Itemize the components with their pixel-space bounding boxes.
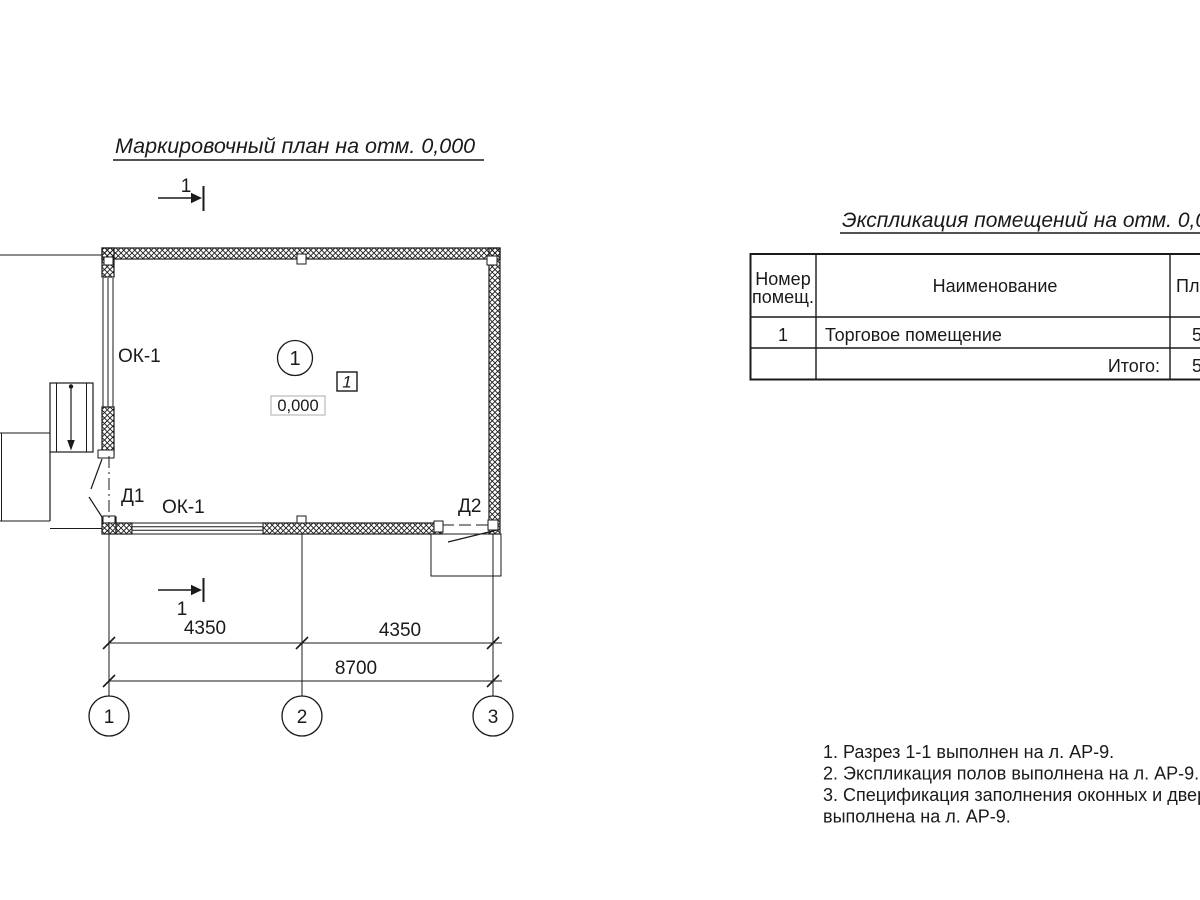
axis-2-label: 2 [297, 707, 308, 728]
wall-bottom-seg1 [116, 523, 132, 534]
notes-block: 1. Разрез 1-1 выполнен на л. АР-9. 2. Эк… [823, 742, 1200, 827]
cell-total-label: Итого: [1108, 356, 1160, 376]
table-title: Экспликация помещений на отм. 0,000 [842, 209, 1200, 232]
room-annotations: 1 1 0,000 ОК-1 Д1 ОК-1 Д2 [118, 341, 481, 519]
wall-right [489, 248, 500, 534]
note-line-1: 1. Разрез 1-1 выполнен на л. АР-9. [823, 742, 1114, 762]
th-area: Площадь [1176, 276, 1200, 296]
note-line-4: выполнена на л. АР-9. [823, 807, 1011, 827]
corner-tab [104, 257, 113, 265]
explication-table: Экспликация помещений на отм. 0,000 Номе… [750, 209, 1200, 381]
section-mark-top-label: 1 [181, 176, 192, 197]
dim-left-label: 4350 [184, 618, 226, 639]
section-mark-bottom: 1 [158, 578, 204, 620]
window-bottom [132, 523, 263, 534]
wall-bottom-seg2 [263, 523, 442, 534]
drawing-canvas: Маркировочный план на отм. 0,000 1 [0, 0, 1200, 900]
cell-total-area: 5 [1192, 356, 1200, 376]
door2-swing [448, 530, 497, 542]
elevation-label: 0,000 [277, 397, 318, 415]
room-tag-label: 1 [342, 373, 351, 392]
cell-room-no: 1 [778, 325, 788, 345]
door2-label: Д2 [458, 496, 481, 517]
window-frame [132, 523, 263, 534]
room-number-label: 1 [289, 348, 300, 370]
direction-arrow-head-icon [67, 440, 75, 451]
page-title: Маркировочный план на отм. 0,000 [115, 134, 475, 158]
axes-and-dimensions: 4350 4350 8700 1 2 3 [89, 456, 513, 736]
cell-room-area: 5 [1192, 325, 1200, 345]
cell-room-name: Торговое помещение [825, 325, 1002, 345]
door2-frame-tab [434, 521, 443, 532]
dim-total-label: 8700 [335, 658, 377, 679]
axis2-top-tab [297, 254, 306, 264]
section-mark-top: 1 [158, 176, 204, 211]
axis2-bottom-tab [297, 516, 306, 523]
th-name: Наименование [933, 276, 1058, 296]
plan-title-block: Маркировочный план на отм. 0,000 [113, 134, 484, 160]
entrance-steps [50, 383, 102, 529]
section-mark-bottom-label: 1 [177, 599, 188, 620]
porch-right-outline [431, 534, 501, 576]
note-line-2: 2. Экспликация полов выполнена на л. АР-… [823, 764, 1199, 784]
corner-tab [487, 256, 497, 265]
door1-label: Д1 [121, 486, 144, 507]
wall-left-pier-mid [102, 407, 114, 455]
window-left [103, 278, 113, 407]
dim-right-label: 4350 [379, 620, 421, 641]
window-bottom-label: ОК-1 [162, 497, 205, 518]
door2-frame-tab [488, 520, 498, 530]
door1-head-tab [98, 450, 114, 458]
axis-1-label: 1 [104, 707, 115, 728]
window-left-label: ОК-1 [118, 346, 161, 367]
th-room-number-line2: помещ. [752, 287, 814, 307]
axis-3-label: 3 [488, 707, 499, 728]
section-arrow-head-icon [191, 585, 202, 595]
section-arrow-head-icon [191, 193, 202, 203]
note-line-3: 3. Спецификация заполнения оконных и две… [823, 785, 1200, 805]
th-room-number-line1: Номер [755, 269, 810, 289]
door1-swing [89, 459, 102, 517]
